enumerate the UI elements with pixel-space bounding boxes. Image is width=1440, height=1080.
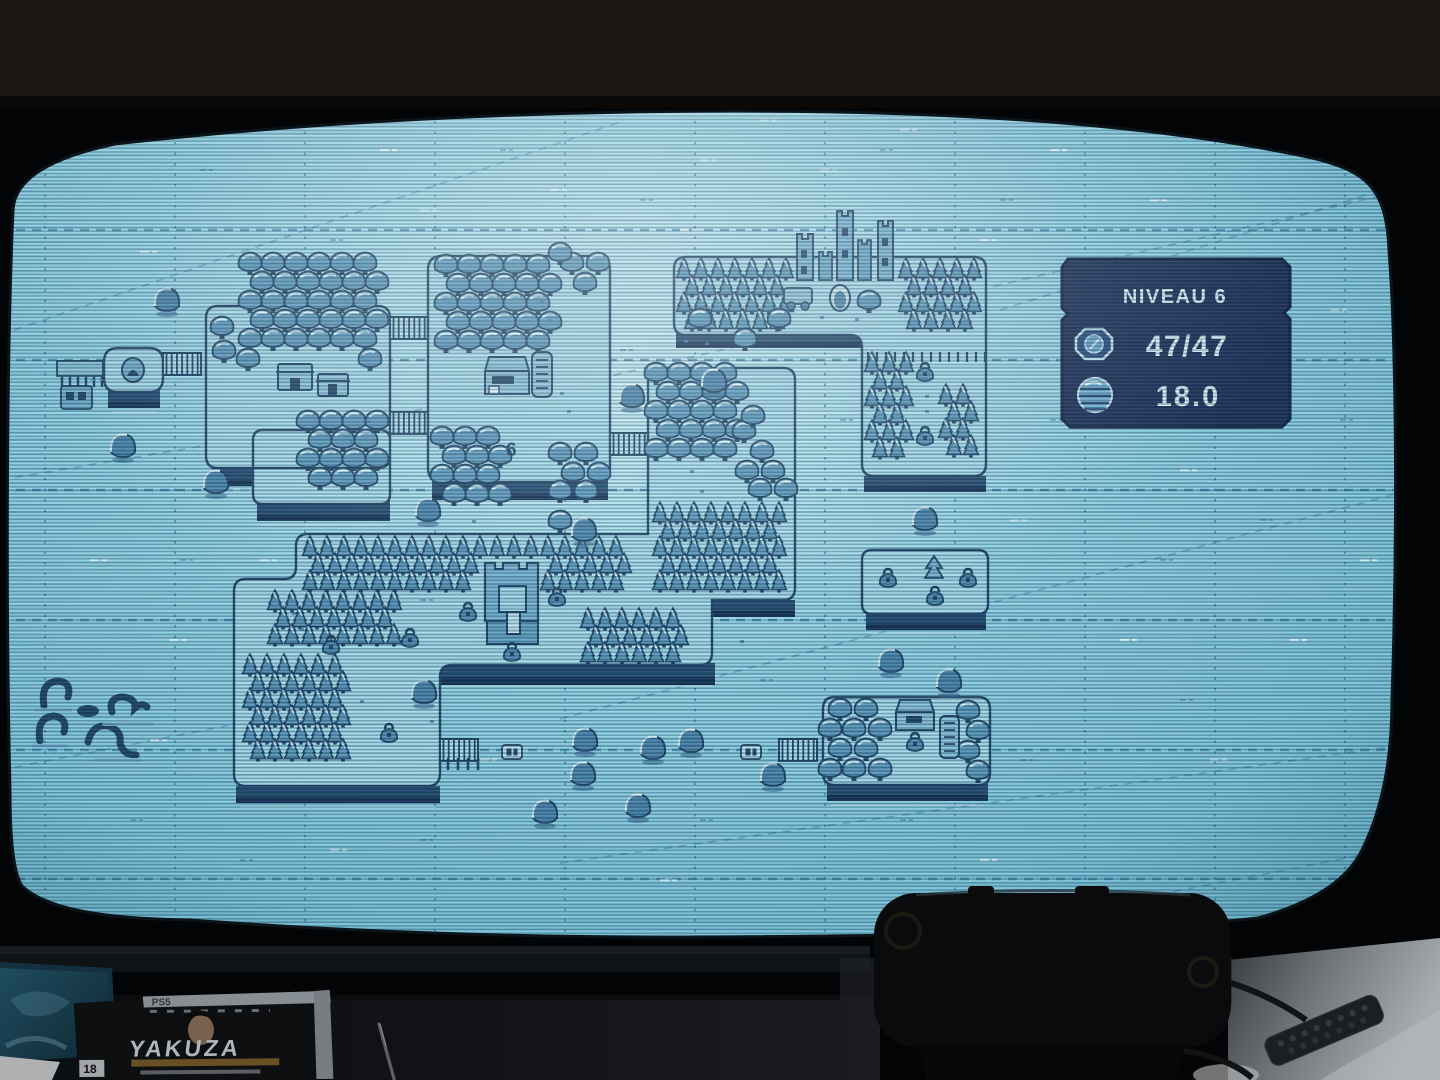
svg-text:YAKUZA: YAKUZA [128,1035,243,1062]
svg-text:18: 18 [83,1062,97,1076]
svg-text:PS5: PS5 [152,997,171,1008]
